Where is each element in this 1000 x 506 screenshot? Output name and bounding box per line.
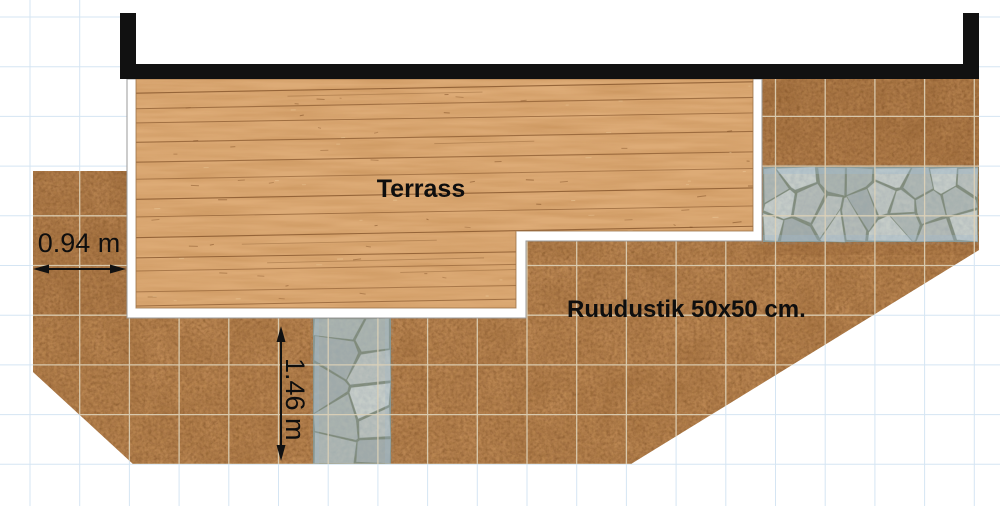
svg-text:1.46 m: 1.46 m (280, 358, 310, 441)
svg-text:Terrass: Terrass (377, 175, 466, 203)
svg-text:0.94 m: 0.94 m (38, 228, 121, 258)
svg-text:Ruudustik 50x50 cm.: Ruudustik 50x50 cm. (567, 296, 806, 323)
